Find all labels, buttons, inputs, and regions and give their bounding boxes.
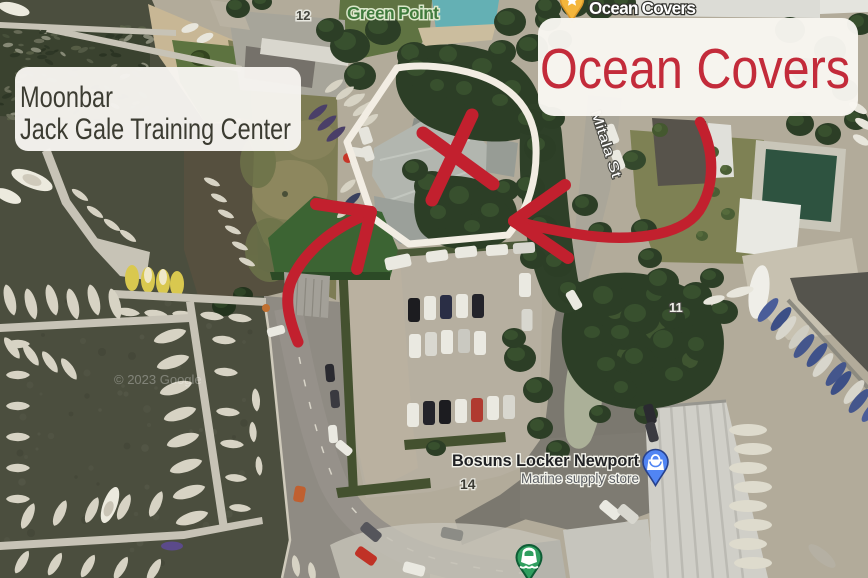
svg-text:© 2023 Google: © 2023 Google	[114, 372, 202, 387]
svg-text:Ocean Covers: Ocean Covers	[540, 37, 850, 101]
svg-text:14: 14	[460, 476, 476, 492]
svg-text:Marine supply store: Marine supply store	[521, 471, 639, 486]
svg-text:11: 11	[669, 300, 683, 315]
svg-text:12: 12	[296, 8, 310, 23]
svg-text:Green Point: Green Point	[347, 3, 439, 23]
svg-text:Ocean Covers: Ocean Covers	[589, 0, 696, 18]
svg-text:Moonbar: Moonbar	[20, 81, 113, 114]
svg-text:Jack Gale Training Center: Jack Gale Training Center	[20, 113, 291, 146]
svg-text:Bosuns Locker Newport: Bosuns Locker Newport	[452, 451, 639, 470]
